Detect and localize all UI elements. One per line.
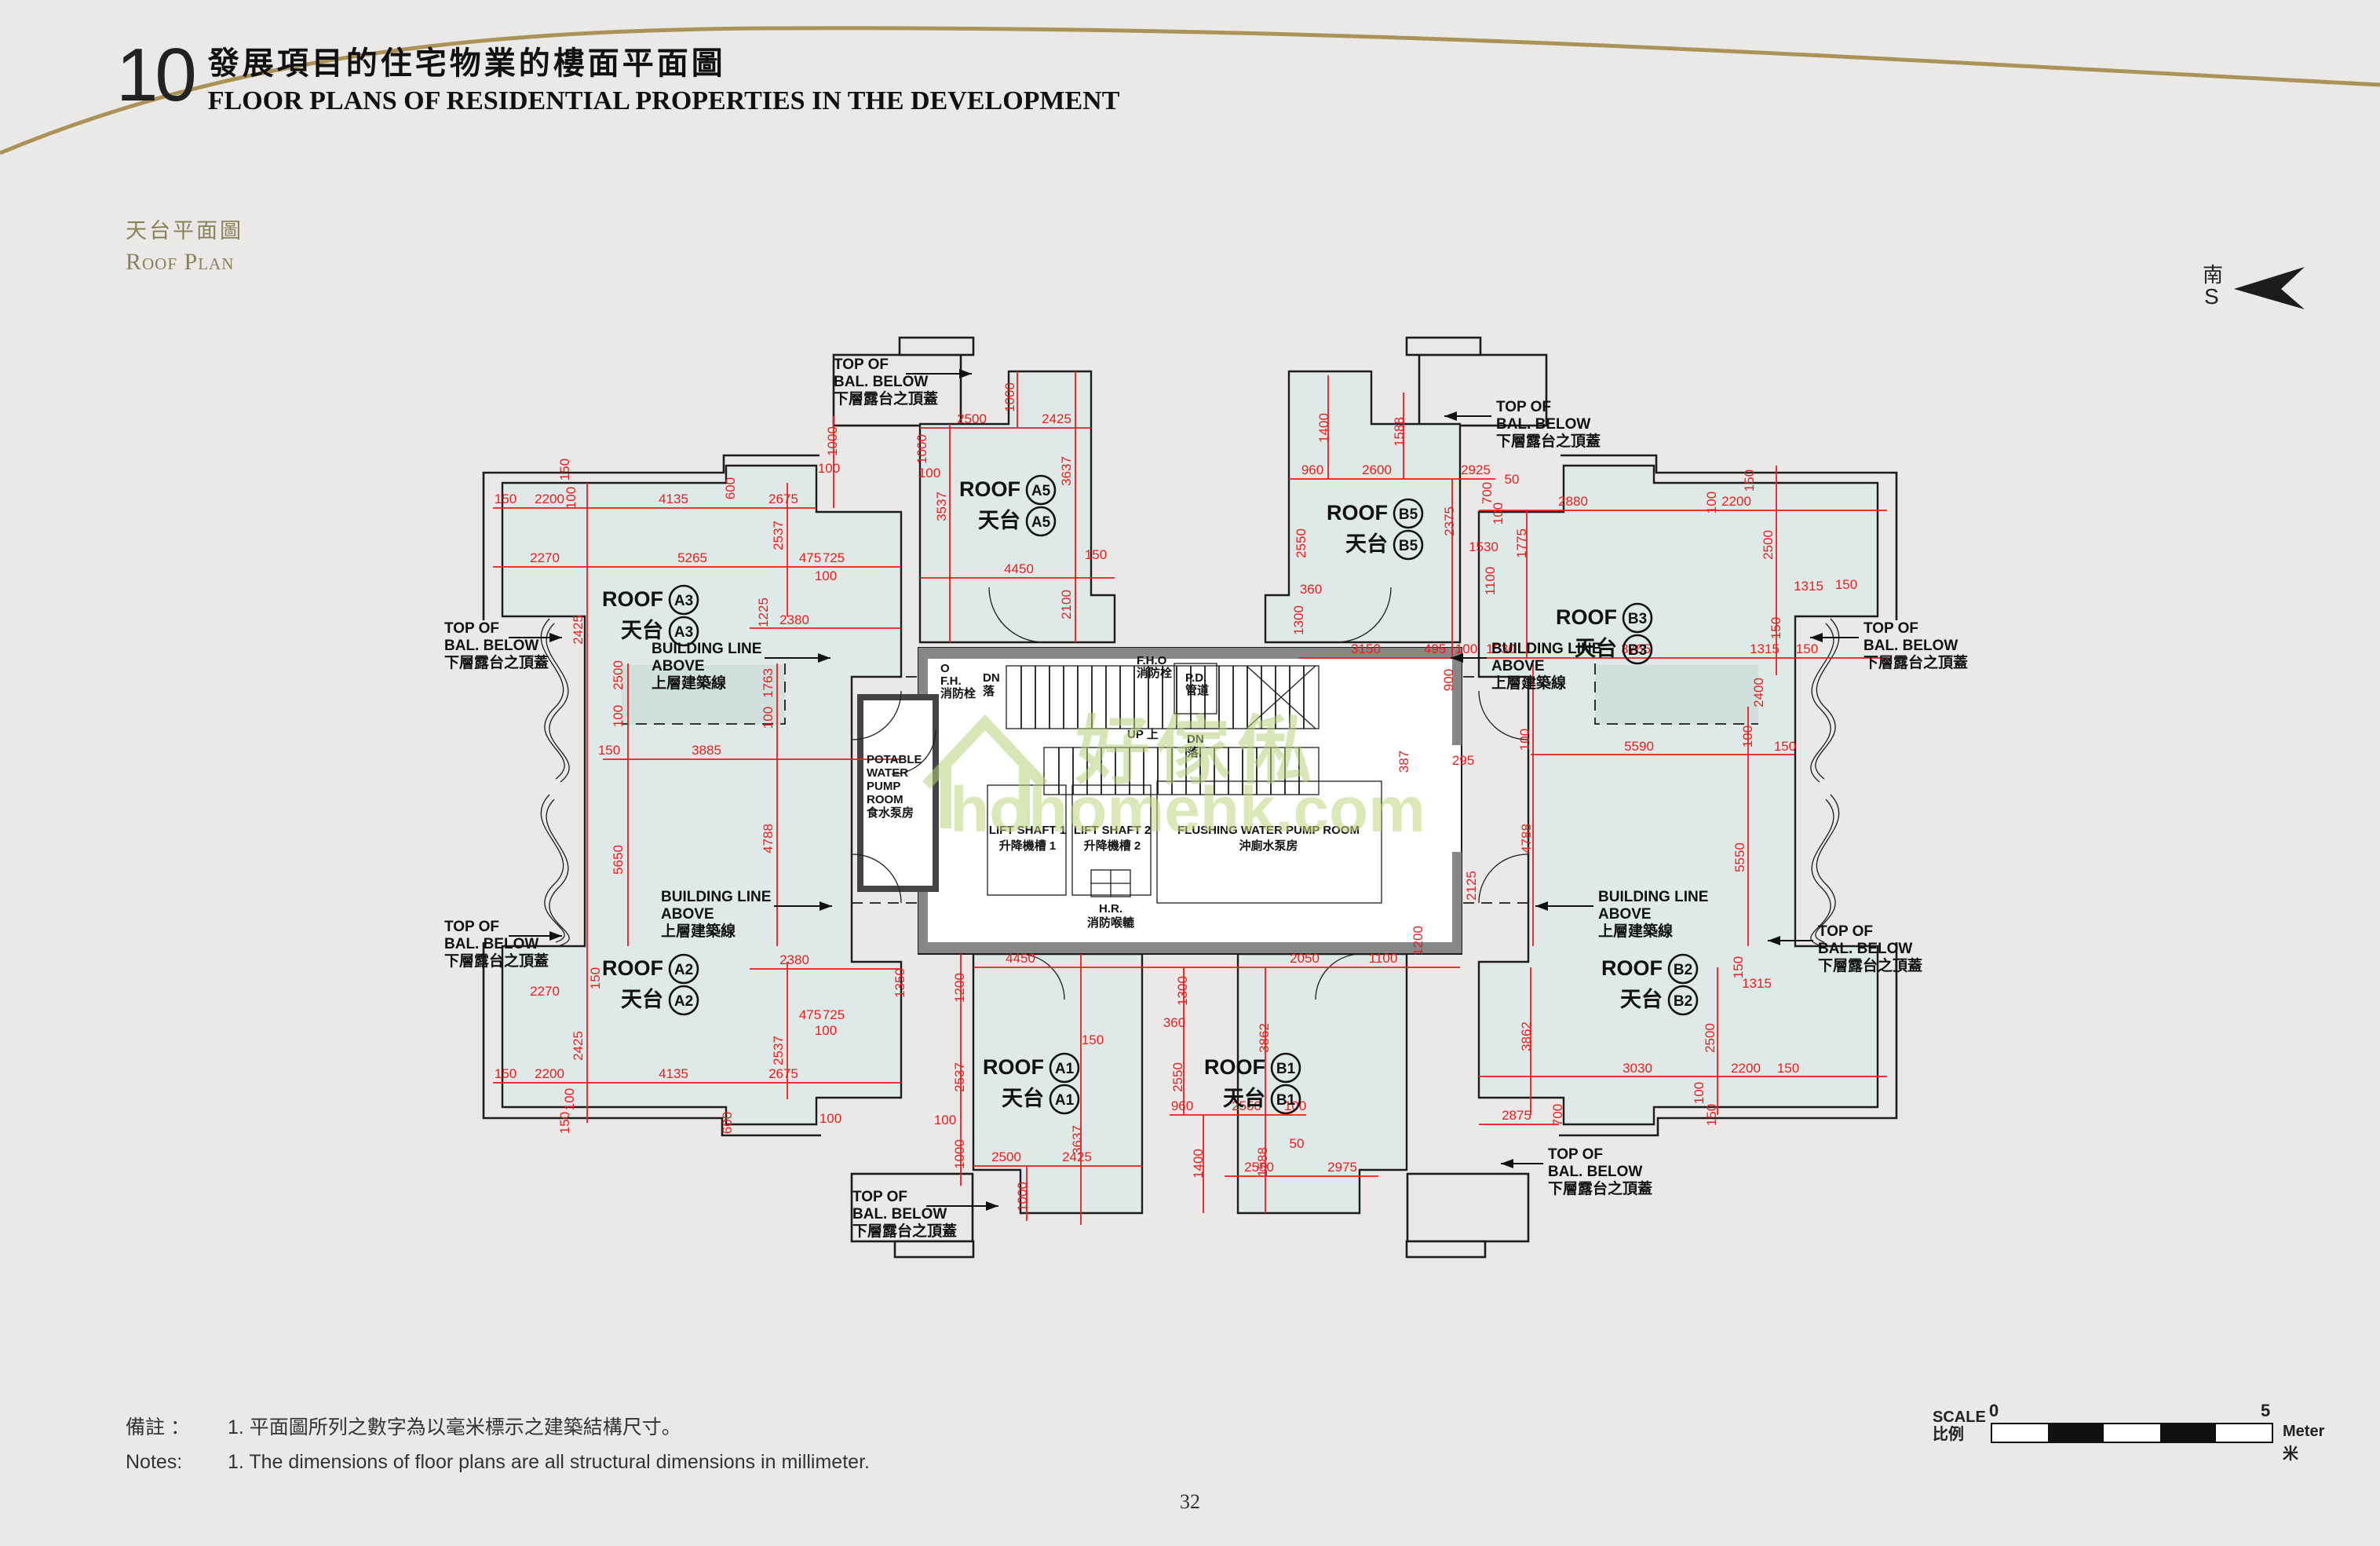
dimension-label: 150 xyxy=(1082,1032,1104,1047)
dimension-label: 2925 xyxy=(1461,462,1491,477)
dimension-label: 100 xyxy=(815,568,837,583)
dimension-label: 600 xyxy=(723,477,738,499)
annotation-text: 下層露台之頂蓋 xyxy=(1818,956,1922,974)
note-text-en: 1. The dimensions of floor plans are all… xyxy=(228,1451,870,1474)
dimension-label: 50 xyxy=(1290,1136,1305,1151)
annotation-text: BUILDING LINE xyxy=(652,641,761,657)
unit-label-cn: 天台 xyxy=(621,618,663,642)
unit-code: A2 xyxy=(674,962,693,978)
annotation-text: TOP OF xyxy=(1818,923,1873,940)
dimension-label: 475 xyxy=(799,1007,821,1022)
annotation-text: 上層建築線 xyxy=(1598,922,1673,940)
unit-code: B2 xyxy=(1674,962,1692,978)
dimension-label: 150 xyxy=(557,1112,572,1134)
annotation-text: 上層建築線 xyxy=(1491,674,1566,692)
unit-label-en: ROOF xyxy=(602,587,663,611)
dimension-label: 2380 xyxy=(779,952,809,967)
room-label: 升降機槽 2 xyxy=(1084,839,1141,853)
dimension-label: 5265 xyxy=(677,550,707,565)
page-number: 32 xyxy=(0,1490,2380,1514)
annotation-text: 下層露台之頂蓋 xyxy=(1496,432,1601,450)
dimension-label: 1400 xyxy=(1316,413,1331,443)
annotation-text: TOP OF xyxy=(1863,620,1918,637)
annotation-text: BAL. BELOW xyxy=(444,936,538,952)
unit-label-cn: 天台 xyxy=(1002,1086,1044,1110)
dimension-label: 2270 xyxy=(530,550,560,565)
dimension-label: 2550 xyxy=(1170,1062,1185,1092)
dimension-label: 1400 xyxy=(1191,1149,1206,1179)
dimension-label: 100 xyxy=(1491,503,1506,524)
dimension-label: 150 xyxy=(1704,1104,1719,1126)
dimension-label: 5590 xyxy=(1624,739,1654,754)
dimension-label: 2200 xyxy=(535,1066,564,1081)
dimension-label: 2550 xyxy=(1244,1160,1274,1175)
dimension-label: 360 xyxy=(1300,582,1322,597)
dimension-label: 900 xyxy=(1441,669,1456,691)
dimension-label: 725 xyxy=(823,550,845,565)
dimension-label: 2880 xyxy=(1558,494,1588,509)
room-label: F.H.O xyxy=(1137,654,1167,667)
note-text-cn: 1. 平面圖所列之數字為以毫米標示之建築結構尺寸。 xyxy=(228,1412,681,1440)
dimension-label: 100 xyxy=(761,707,776,729)
dimension-label: 1763 xyxy=(761,668,776,698)
unit-code: A3 xyxy=(674,593,693,609)
scale-end: 5 xyxy=(2261,1401,2270,1421)
dimension-label: 2100 xyxy=(1059,590,1074,619)
unit-code: B5 xyxy=(1399,506,1418,523)
dimension-label: 4135 xyxy=(659,492,688,506)
dimension-label: 2425 xyxy=(1062,1149,1092,1164)
dimension-label: 3150 xyxy=(1351,641,1381,656)
dimension-label: 4788 xyxy=(1519,824,1534,853)
room-label: O xyxy=(940,662,950,675)
dimension-label: 700 xyxy=(1480,482,1495,504)
dimension-label: 150 xyxy=(1796,641,1818,656)
dimension-label: 3537 xyxy=(934,492,949,521)
dimension-label: 150 xyxy=(588,967,603,989)
leader-arrowhead xyxy=(549,633,562,642)
annotation-text: 下層露台之頂蓋 xyxy=(444,952,549,970)
leader-arrowhead xyxy=(549,931,562,941)
dimension-label: 150 xyxy=(1085,547,1107,562)
roof-area-a1 xyxy=(973,954,1142,1213)
annotation-text: 下層露台之頂蓋 xyxy=(444,653,549,671)
unit-label-cn: 天台 xyxy=(978,508,1020,532)
unit-code: A5 xyxy=(1031,483,1051,499)
dimension-label: 3885 xyxy=(692,743,721,758)
unit-label-en: ROOF xyxy=(1327,501,1388,524)
leader-arrowhead xyxy=(1501,1159,1513,1168)
dimension-label: 100 xyxy=(815,1023,837,1038)
dimension-label: 2500 xyxy=(611,660,626,690)
room-label: 升降機槽 1 xyxy=(999,839,1057,853)
annotation-text: BUILDING LINE xyxy=(661,889,771,905)
dimension-label: 100 xyxy=(1692,1082,1707,1104)
dimension-label: 2537 xyxy=(952,1062,967,1092)
room-label: 消防栓 xyxy=(1137,666,1172,680)
dimension-label: 2425 xyxy=(1042,411,1071,426)
dimension-label: 1300 xyxy=(1291,605,1306,635)
leader-arrowhead xyxy=(986,1201,998,1211)
dimension-label: 150 xyxy=(1777,1061,1799,1076)
annotation-text: 下層露台之頂蓋 xyxy=(1863,653,1968,671)
dimension-label: 2500 xyxy=(957,411,987,426)
dimension-label: 5550 xyxy=(1732,842,1747,872)
dimension-label: 150 xyxy=(495,492,517,506)
annotation-text: 上層建築線 xyxy=(652,674,726,692)
dimension-label: 1775 xyxy=(1514,528,1529,558)
annotation-text: BUILDING LINE xyxy=(1491,641,1601,657)
dimension-label: 2200 xyxy=(1721,494,1751,509)
unit-label-en: ROOF xyxy=(1204,1055,1265,1079)
dimension-label: 1200 xyxy=(952,973,967,1003)
dimension-label: 100 xyxy=(819,1111,841,1126)
annotation-text: 下層露台之頂蓋 xyxy=(852,1222,957,1240)
dimension-label: 150 xyxy=(1835,577,1857,592)
room-label: 食水泵房 xyxy=(867,806,914,820)
dimension-label: 1588 xyxy=(1392,417,1407,447)
dimension-label: 150 xyxy=(557,459,572,481)
unit-code: A1 xyxy=(1055,1092,1075,1109)
dimension-label: 1000 xyxy=(952,1139,967,1169)
dimension-label: 2200 xyxy=(535,492,564,506)
dimension-label: 100 xyxy=(562,1088,577,1110)
dimension-label: 2270 xyxy=(530,984,560,999)
unit-label-en: ROOF xyxy=(1601,956,1663,980)
room-label: FLUSHING WATER PUMP ROOM xyxy=(1177,824,1360,837)
room-label: 管道 xyxy=(1185,683,1209,697)
dimension-label: 4135 xyxy=(659,1066,688,1081)
room-label: P.D. xyxy=(1185,671,1206,685)
dimension-label: 360 xyxy=(1163,1015,1185,1030)
roof-floor-plan: 1502200100413526752270526547572510024252… xyxy=(0,0,2380,1546)
dimension-label: 1200 xyxy=(1411,926,1425,956)
dimension-label: 100 xyxy=(1704,492,1719,514)
room-label: PUMP xyxy=(867,780,900,793)
scale-unit: Meter 米 xyxy=(2283,1423,2341,1464)
dimension-label: 2975 xyxy=(1327,1160,1357,1175)
unit-code: B5 xyxy=(1399,538,1418,554)
room-label: POTABLE xyxy=(867,753,922,766)
dimension-label: 1315 xyxy=(1794,579,1823,594)
annotation-text: 下層露台之頂蓋 xyxy=(1548,1179,1652,1197)
dimension-label: 100 xyxy=(564,487,579,509)
dimension-label: 150 xyxy=(495,1066,517,1081)
dimension-label: 475 xyxy=(799,550,821,565)
unit-label-en: ROOF xyxy=(959,477,1020,501)
dimension-label: 100 xyxy=(1455,641,1477,656)
annotation-text: TOP OF xyxy=(444,620,499,637)
dimension-label: 150 xyxy=(1769,617,1783,639)
dimension-label: 100 xyxy=(934,1113,956,1128)
dimension-label: 2375 xyxy=(1442,506,1457,536)
dimension-label: 100 xyxy=(611,705,626,727)
unit-code: B3 xyxy=(1628,611,1647,627)
dimension-label: 3030 xyxy=(1623,1061,1652,1076)
room-label: DN xyxy=(983,671,1000,685)
dimension-label: 1315 xyxy=(1742,976,1772,991)
dimension-label: 4450 xyxy=(1004,561,1034,576)
dimension-label: 1315 xyxy=(1750,641,1780,656)
room-label: LIFT SHAFT 1 xyxy=(989,824,1066,837)
room-label: 落 xyxy=(983,684,995,698)
room-label: WATER xyxy=(867,766,908,780)
dimension-label: 2050 xyxy=(1290,951,1320,966)
annotation-text: ABOVE xyxy=(1598,906,1652,923)
annotation-text: BAL. BELOW xyxy=(852,1206,947,1223)
dimension-label: 387 xyxy=(1396,751,1411,773)
room-label: DN xyxy=(1187,733,1204,746)
unit-label-en: ROOF xyxy=(983,1055,1044,1079)
room-label: F.H. xyxy=(940,674,962,688)
unit-code: A5 xyxy=(1031,514,1051,531)
scale-start: 0 xyxy=(1989,1401,1999,1421)
dimension-label: 2125 xyxy=(1464,871,1479,901)
annotation-text: BAL. BELOW xyxy=(1818,941,1912,957)
unit-label-en: ROOF xyxy=(1556,605,1617,629)
room-label: 消防栓 xyxy=(940,686,976,700)
dimension-label: 2400 xyxy=(1751,678,1766,707)
unit-label-cn: 天台 xyxy=(1345,532,1388,556)
dimension-label: 1100 xyxy=(1369,951,1398,966)
dimension-label: 150 xyxy=(1774,739,1796,754)
dimension-label: 5650 xyxy=(611,845,626,875)
dimension-label: 295 xyxy=(1452,753,1474,768)
room-label: LIFT SHAFT 2 xyxy=(1074,824,1151,837)
dimension-label: 100 xyxy=(1740,725,1755,747)
room-label: 沖廁水泵房 xyxy=(1239,839,1298,853)
room-label: 消防喉轆 xyxy=(1087,916,1134,930)
dimension-label: 2537 xyxy=(771,521,786,550)
scale-label-cn: 比例 xyxy=(1933,1426,1964,1443)
dimension-label: 2550 xyxy=(1294,528,1309,558)
dimension-label: 3862 xyxy=(1257,1023,1272,1053)
building-line-zone-right xyxy=(1595,665,1758,725)
dimension-label: 100 xyxy=(818,461,840,476)
dimension-label: 2537 xyxy=(771,1036,786,1065)
dimension-label: 1000 xyxy=(914,434,929,464)
dimension-label: 100 xyxy=(1517,729,1532,751)
unit-code: B1 xyxy=(1276,1061,1296,1077)
notes-label-cn: 備註 ： xyxy=(126,1412,228,1440)
notes-block: 備註 ： 1. 平面圖所列之數字為以毫米標示之建築結構尺寸。 Notes: 1.… xyxy=(126,1412,870,1485)
dimension-label: 1000 xyxy=(1002,382,1017,412)
annotation-text: BAL. BELOW xyxy=(1548,1164,1642,1180)
leader-arrowhead xyxy=(959,369,972,378)
annotation-text: BAL. BELOW xyxy=(834,374,928,390)
dimension-label: 2425 xyxy=(571,1031,586,1061)
room-label: UP 上 xyxy=(1127,728,1159,741)
dimension-label: 725 xyxy=(823,1007,845,1022)
dimension-label: 1225 xyxy=(756,598,771,627)
unit-label-cn: 天台 xyxy=(1223,1086,1265,1110)
unit-code: B1 xyxy=(1276,1092,1296,1109)
unit-label-cn: 天台 xyxy=(1620,987,1663,1011)
unit-code: B2 xyxy=(1674,993,1692,1010)
scale-bar-graphic xyxy=(1991,1423,2273,1443)
dimension-label: 2200 xyxy=(1731,1061,1761,1076)
unit-code: A2 xyxy=(674,993,693,1010)
annotation-text: BAL. BELOW xyxy=(1863,638,1958,654)
dimension-label: 3637 xyxy=(1059,456,1074,486)
dimension-label: 2675 xyxy=(768,1066,798,1081)
annotation-text: BAL. BELOW xyxy=(1496,416,1590,433)
dimension-label: 50 xyxy=(1505,472,1520,487)
annotation-text: TOP OF xyxy=(834,356,889,373)
roof-area-b3-b2 xyxy=(1479,466,1878,1124)
dimension-label: 2875 xyxy=(1502,1108,1531,1123)
dimension-label: 100 xyxy=(918,466,940,481)
unit-code: A1 xyxy=(1055,1061,1075,1077)
dimension-label: 2500 xyxy=(1761,530,1776,560)
dimension-label: 1100 xyxy=(1483,567,1498,596)
annotation-text: BAL. BELOW xyxy=(444,638,538,654)
room-label: H.R. xyxy=(1099,902,1122,916)
annotation-text: ABOVE xyxy=(661,906,714,923)
annotation-text: 下層露台之頂蓋 xyxy=(834,389,938,408)
dimension-label: 2500 xyxy=(1703,1023,1717,1053)
dimension-label: 2380 xyxy=(779,612,809,627)
annotation-text: TOP OF xyxy=(1548,1146,1603,1163)
annotation-text: TOP OF xyxy=(1496,399,1551,415)
annotation-text: ABOVE xyxy=(652,658,705,674)
dimension-label: 150 xyxy=(598,743,620,758)
dimension-label: 2675 xyxy=(768,492,798,506)
unit-label-cn: 天台 xyxy=(621,987,663,1011)
annotation-text: TOP OF xyxy=(444,919,499,935)
annotation-text: BUILDING LINE xyxy=(1598,889,1708,905)
dimension-label: 960 xyxy=(1301,462,1323,477)
annotation-text: 上層建築線 xyxy=(661,922,736,940)
dimension-label: 4450 xyxy=(1006,951,1035,966)
dimension-label: 150 xyxy=(1742,470,1757,492)
dimension-label: 1300 xyxy=(1175,976,1190,1006)
dimension-label: 1000 xyxy=(1015,1182,1030,1212)
dimension-label: 2600 xyxy=(1362,462,1392,477)
notes-label-en: Notes: xyxy=(126,1451,228,1474)
dimension-label: 495 xyxy=(1424,641,1446,656)
scale-label-en: SCALE xyxy=(1933,1409,1986,1426)
room-label: ROOM xyxy=(867,793,903,806)
unit-label-en: ROOF xyxy=(602,956,663,980)
unit-code: B3 xyxy=(1628,642,1647,659)
unit-code: A3 xyxy=(674,624,693,641)
annotation-text: TOP OF xyxy=(852,1189,907,1205)
dimension-label: 2425 xyxy=(571,615,586,645)
dimension-label: 600 xyxy=(720,1112,735,1134)
dimension-label: 150 xyxy=(1731,956,1746,978)
dimension-label: 4788 xyxy=(761,824,776,853)
annotation-text: ABOVE xyxy=(1491,658,1545,674)
scale-bar: SCALE 比例 0 5 Meter 米 xyxy=(1933,1404,2341,1451)
dimension-label: 700 xyxy=(1550,1104,1565,1126)
dimension-label: 1350 xyxy=(892,968,907,998)
dimension-label: 1000 xyxy=(825,426,840,456)
dimension-label: 3862 xyxy=(1519,1022,1534,1051)
dimension-label: 2500 xyxy=(991,1149,1021,1164)
room-label: 落 xyxy=(1187,745,1199,759)
dimension-label: 1530 xyxy=(1469,539,1498,554)
dimension-label: 960 xyxy=(1171,1098,1193,1113)
